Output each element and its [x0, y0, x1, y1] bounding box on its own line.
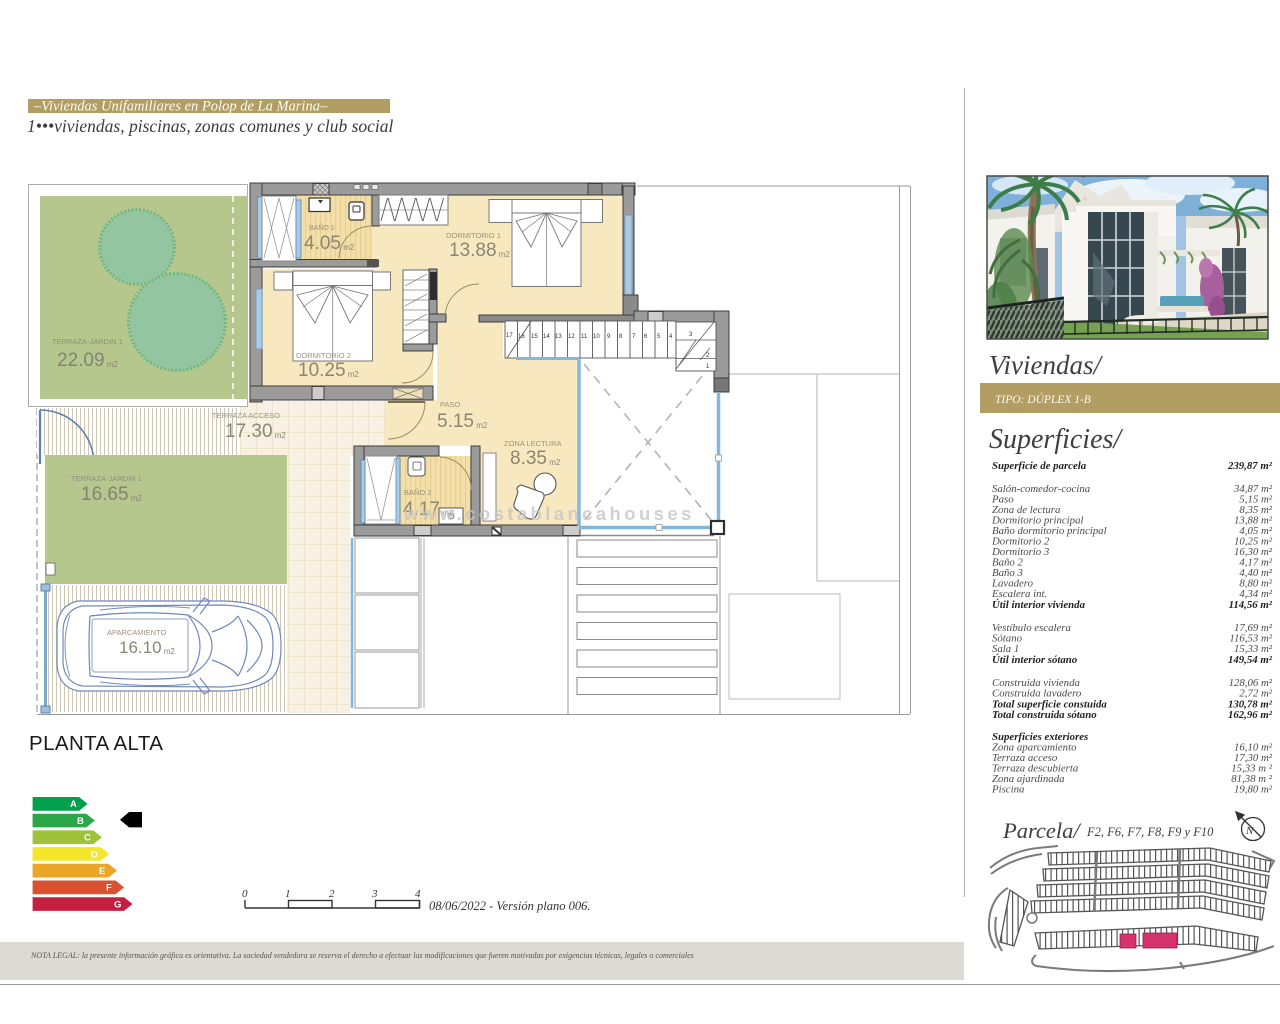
svg-text:19,80 m²: 19,80 m² — [1234, 784, 1273, 796]
svg-text:Superficie de parcela: Superficie de parcela — [992, 460, 1087, 472]
svg-text:A: A — [70, 799, 77, 810]
svg-text:F: F — [106, 883, 112, 894]
svg-text:1: 1 — [285, 888, 291, 900]
svg-text:10: 10 — [593, 334, 600, 340]
svg-text:08/06/2022 - Versión plano 006: 08/06/2022 - Versión plano 006. — [429, 899, 590, 913]
svg-text:12: 12 — [568, 334, 575, 340]
svg-text:D: D — [91, 849, 98, 860]
svg-text:–Viviendas Unifamiliares en Po: –Viviendas Unifamiliares en Polop de La … — [33, 99, 328, 115]
svg-text:239,87 m²: 239,87 m² — [1227, 460, 1273, 472]
svg-text:11: 11 — [581, 334, 588, 340]
svg-text:TIPO: DÚPLEX 1-B: TIPO: DÚPLEX 1-B — [995, 392, 1091, 406]
svg-text:N: N — [1245, 825, 1254, 837]
svg-text:1•••viviendas, piscinas, zonas: 1•••viviendas, piscinas, zonas comunes y… — [27, 116, 394, 136]
svg-text:15: 15 — [531, 334, 538, 340]
svg-text:Útil interior sótano: Útil interior sótano — [992, 654, 1078, 666]
svg-text:4: 4 — [415, 888, 421, 900]
svg-text:NOTA LEGAL: la presente inform: NOTA LEGAL: la presente información gráf… — [30, 951, 694, 960]
svg-text:F2, F6, F7, F8, F9 y F10: F2, F6, F7, F8, F9 y F10 — [1086, 825, 1214, 839]
svg-text:162,96 m²: 162,96 m² — [1228, 709, 1273, 721]
svg-text:17: 17 — [506, 333, 513, 339]
svg-text:Parcela/: Parcela/ — [1002, 818, 1081, 843]
svg-text:14: 14 — [543, 334, 550, 340]
svg-text:114,56 m²: 114,56 m² — [1229, 599, 1273, 611]
svg-text:149,54 m²: 149,54 m² — [1228, 654, 1273, 666]
svg-text:www.costablancahouses: www.costablancahouses — [403, 503, 695, 524]
svg-text:2: 2 — [329, 888, 335, 900]
svg-text:DORMITORIO 1: DORMITORIO 1 — [446, 231, 501, 240]
svg-text:E: E — [99, 866, 105, 877]
svg-text:16: 16 — [518, 334, 525, 340]
svg-text:Piscina: Piscina — [991, 784, 1024, 796]
svg-text:13: 13 — [555, 334, 562, 340]
svg-text:Superficies/: Superficies/ — [989, 424, 1123, 455]
svg-text:ZONA LECTURA: ZONA LECTURA — [504, 439, 562, 448]
svg-text:B: B — [77, 816, 84, 827]
svg-text:BAÑO 2: BAÑO 2 — [404, 488, 432, 497]
svg-text:PLANTA ALTA: PLANTA ALTA — [29, 732, 163, 755]
svg-text:TERRAZA-JARDIN 1: TERRAZA-JARDIN 1 — [52, 337, 123, 346]
svg-text:Útil interior vivienda: Útil interior vivienda — [992, 599, 1086, 611]
svg-text:G: G — [114, 899, 121, 910]
svg-text:APARCAMIENTO: APARCAMIENTO — [107, 628, 166, 637]
svg-text:C: C — [84, 833, 91, 844]
svg-text:BAÑO 1: BAÑO 1 — [309, 223, 335, 232]
svg-text:TERRAZA ACCESO: TERRAZA ACCESO — [212, 411, 280, 420]
svg-text:TERRAZA-JARDIN 1: TERRAZA-JARDIN 1 — [71, 474, 142, 483]
svg-text:PASO: PASO — [440, 400, 460, 409]
svg-text:0: 0 — [242, 888, 248, 900]
svg-text:DORMITORIO 2: DORMITORIO 2 — [296, 351, 351, 360]
svg-text:Viviendas/: Viviendas/ — [989, 350, 1103, 380]
svg-text:Total construida sótano: Total construida sótano — [992, 709, 1097, 721]
svg-text:3: 3 — [371, 888, 378, 900]
